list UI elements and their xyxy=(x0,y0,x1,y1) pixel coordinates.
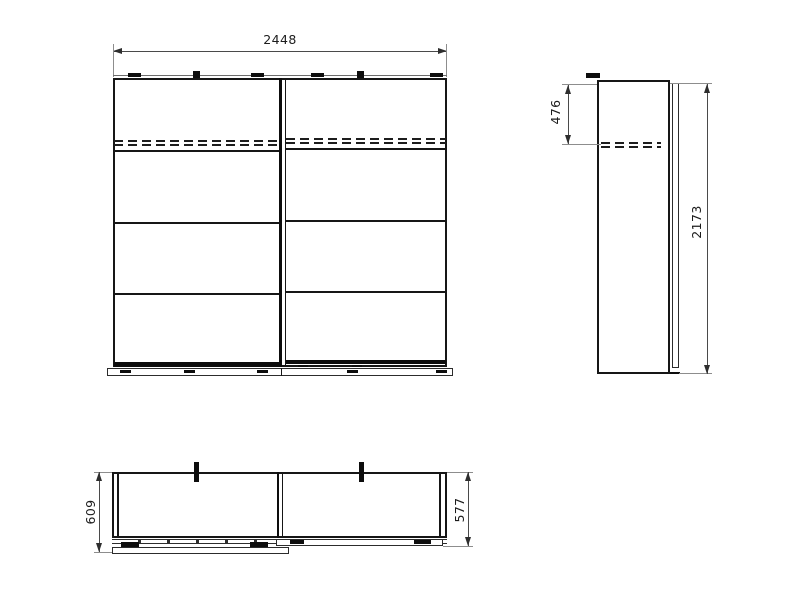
shelf-height-dimension-label: 476 xyxy=(549,96,563,128)
front-width-dimension-label: 2448 xyxy=(113,33,447,47)
track-glide-mark xyxy=(298,365,308,367)
door-roller xyxy=(414,540,431,544)
left-door-bottom-rail xyxy=(114,362,282,367)
foot-glide-mark xyxy=(257,370,268,373)
door-handle xyxy=(359,462,364,482)
door-handle xyxy=(194,462,199,482)
side-panel xyxy=(597,80,670,374)
extension-line-bottom xyxy=(562,144,601,145)
extension-line-bottom xyxy=(94,552,112,553)
door-panel-divider xyxy=(114,150,279,152)
track-glide-mark xyxy=(352,365,362,367)
dim-arrow-left-icon xyxy=(113,48,122,54)
right-door-edge xyxy=(285,78,286,367)
dim-arrow-up-icon xyxy=(565,85,571,94)
right-side-panel-line xyxy=(439,472,441,538)
track-glide-mark xyxy=(420,365,430,367)
door-panel-divider xyxy=(286,148,446,150)
hidden-shelf-line xyxy=(114,140,279,142)
depth-dimension-label: 577 xyxy=(453,495,467,525)
carcass-plan xyxy=(112,472,447,538)
top-bracket-mark xyxy=(430,73,443,77)
door-panel-divider xyxy=(114,222,279,224)
foot-glide-mark xyxy=(347,370,358,373)
middle-partition-line xyxy=(277,472,279,538)
left-door-edge xyxy=(279,78,282,367)
foot-glide-mark xyxy=(120,370,131,373)
plinth xyxy=(107,368,453,376)
dim-arrow-down-icon xyxy=(704,365,710,374)
top-panel-edge xyxy=(113,75,447,76)
door-panel-divider xyxy=(114,293,279,295)
dim-arrow-up-icon xyxy=(465,472,471,481)
extension-line-left xyxy=(113,44,114,77)
technical-drawing-canvas: 2448 xyxy=(0,0,800,600)
door-panel-divider xyxy=(286,291,446,293)
extension-line-bottom xyxy=(443,546,473,547)
depth-dimension-line xyxy=(468,472,469,546)
door-roller xyxy=(290,540,304,544)
hidden-shelf-line xyxy=(601,142,661,144)
front-width-dimension-line xyxy=(113,51,447,52)
hidden-shelf-line xyxy=(114,144,279,146)
height-dimension-label: 2173 xyxy=(690,202,704,242)
right-door-bottom-rail xyxy=(286,360,446,364)
top-bracket-mark xyxy=(251,73,264,77)
dim-arrow-down-icon xyxy=(565,135,571,144)
foot-glide-mark xyxy=(184,370,195,373)
hidden-shelf-line xyxy=(601,146,661,148)
dim-arrow-up-icon xyxy=(704,84,710,93)
foot-glide-mark xyxy=(436,370,447,373)
top-bracket-mark xyxy=(128,73,141,77)
top-bracket-mark xyxy=(311,73,324,77)
hidden-shelf-line xyxy=(286,142,446,144)
middle-partition-line xyxy=(282,472,283,538)
dim-arrow-down-icon xyxy=(96,543,102,552)
height-dimension-line xyxy=(707,84,708,374)
plinth-joint xyxy=(281,368,282,376)
depth-total-dimension-line xyxy=(99,472,100,552)
front-sliding-door-plan xyxy=(112,547,289,554)
dim-arrow-up-icon xyxy=(96,472,102,481)
wall-bracket-mark xyxy=(586,73,600,78)
left-side-panel-line xyxy=(117,472,119,538)
dim-arrow-down-icon xyxy=(465,537,471,546)
door-panel-divider xyxy=(286,220,446,222)
side-door-slab xyxy=(672,83,679,368)
extension-line-right xyxy=(446,44,447,77)
hidden-shelf-line xyxy=(286,138,446,140)
depth-total-dimension-label: 609 xyxy=(84,497,98,527)
